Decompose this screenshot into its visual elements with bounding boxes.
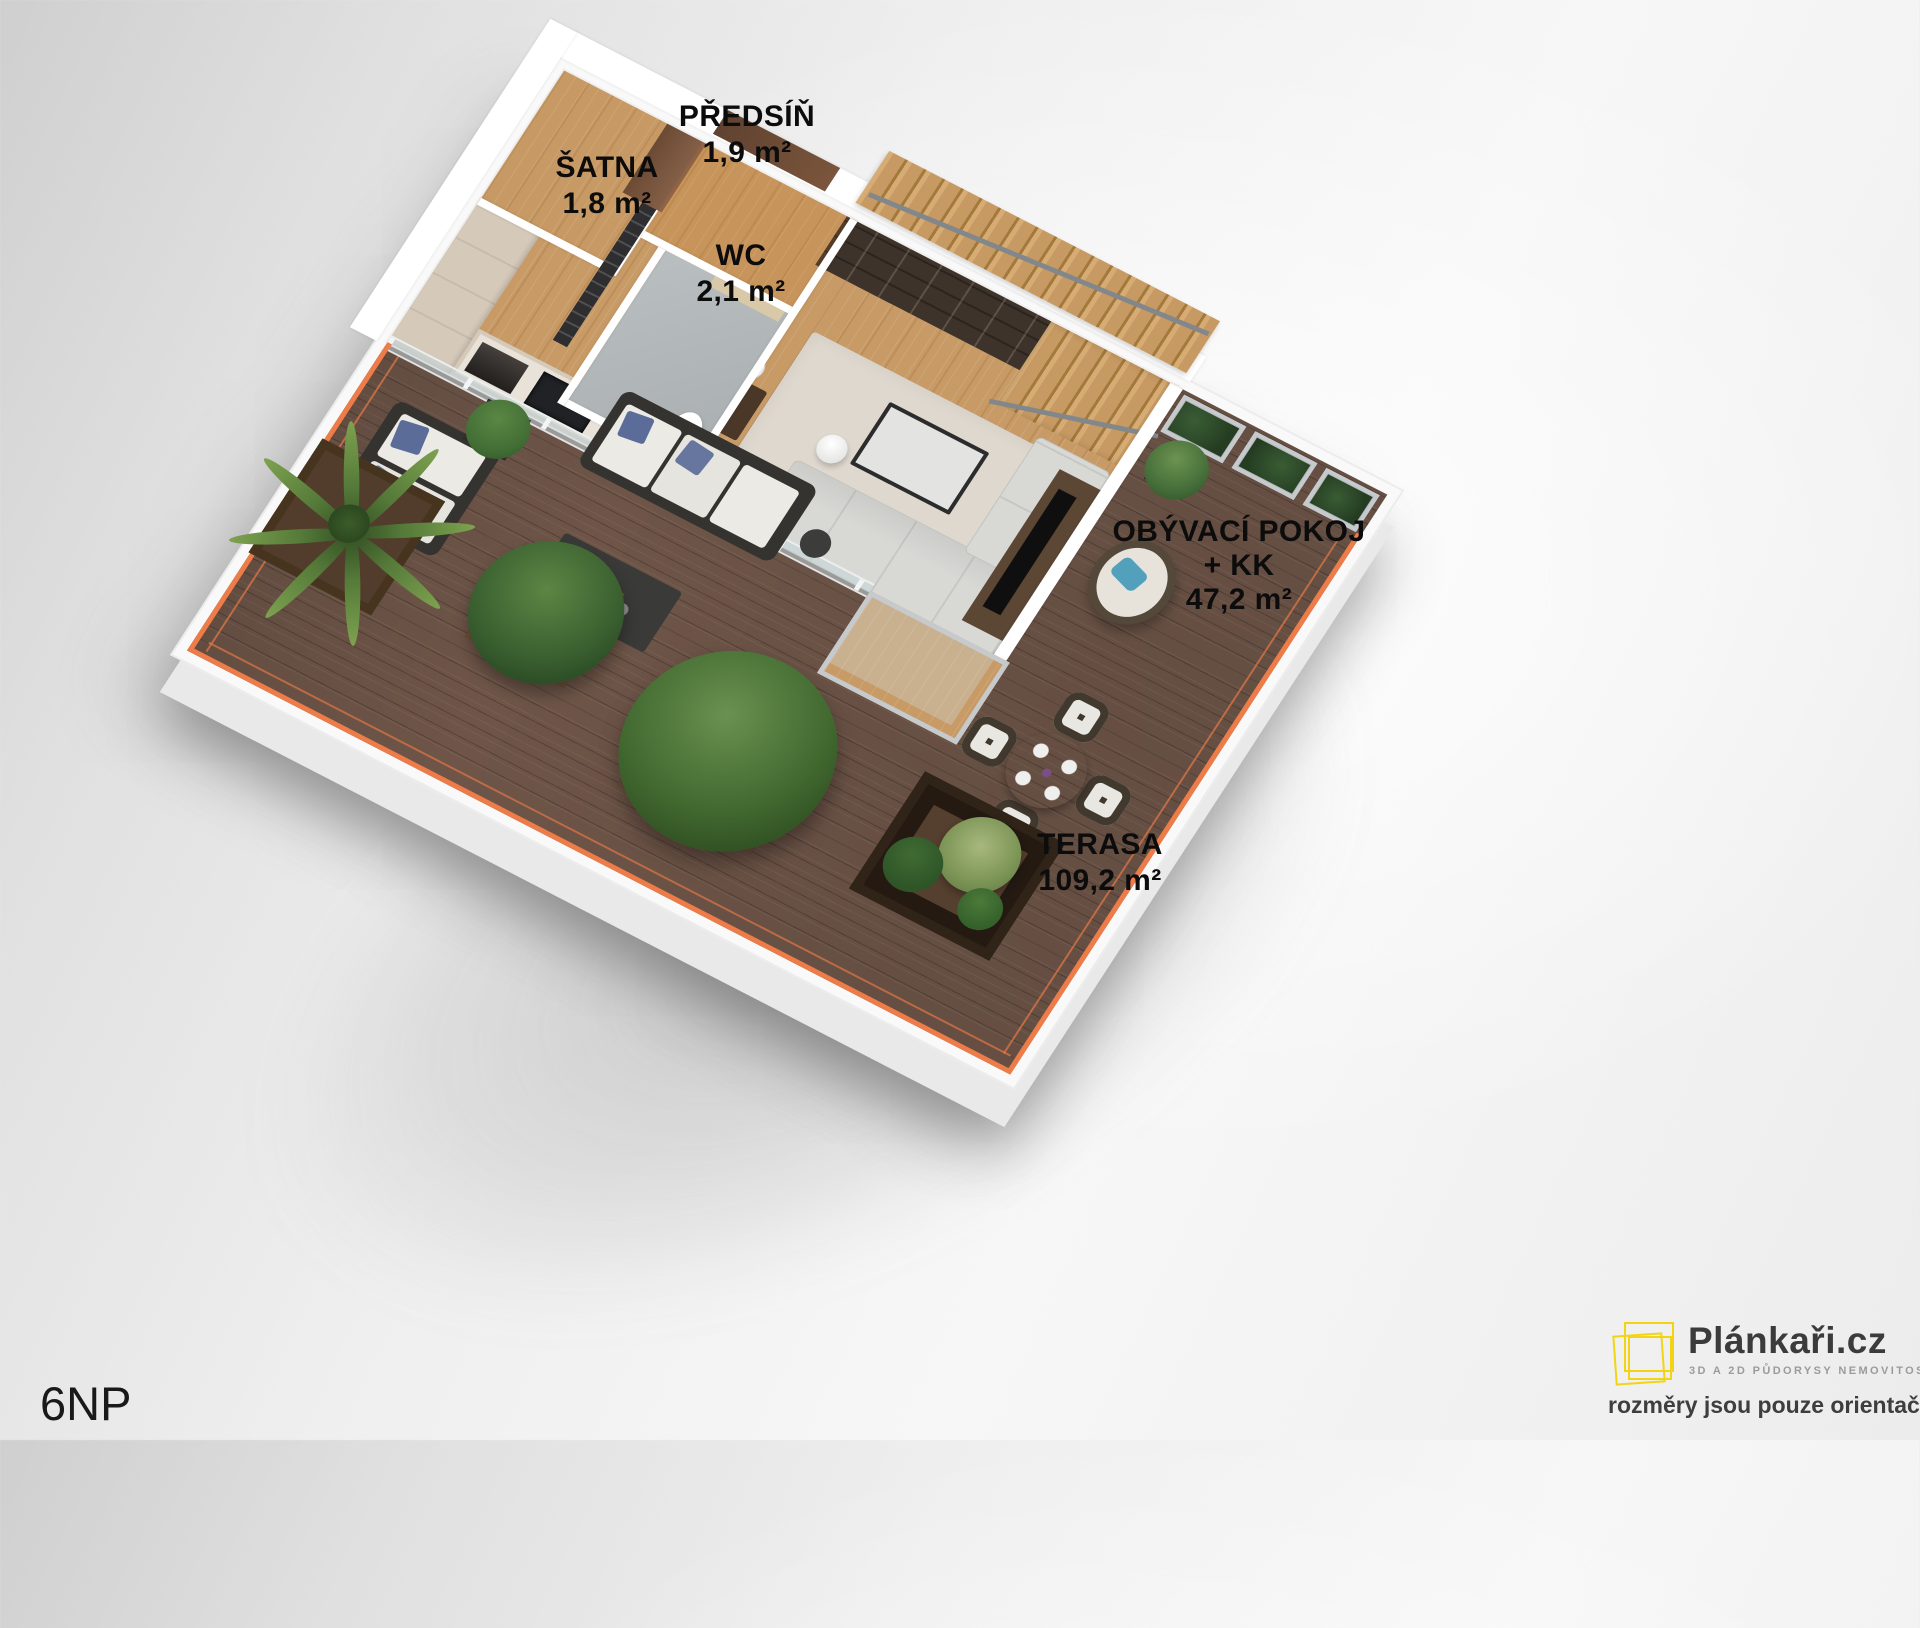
room-area: 109,2 m²: [1037, 863, 1163, 899]
room-title: TERASA: [1037, 827, 1163, 863]
logo-row: Plánkaři.cz 3D A 2D PŮDORYSY NEMOVITOSTÍ: [1608, 1318, 1908, 1390]
room-title: ŠATNA: [555, 150, 658, 186]
room-area: 47,2 m²: [1112, 583, 1365, 617]
brand-tagline: 3D A 2D PŮDORYSY NEMOVITOSTÍ: [1689, 1365, 1920, 1377]
room-label-wc: WC 2,1 m²: [696, 238, 785, 310]
room-subtitle: + KK: [1112, 549, 1365, 583]
room-label-satna: ŠATNA 1,8 m²: [555, 150, 658, 222]
room-area: 2,1 m²: [696, 274, 785, 310]
page-background: { "plan": { "floor_label": "6NP", "rooms…: [0, 0, 1920, 1440]
room-label-terasa: TERASA 109,2 m²: [1037, 827, 1163, 899]
room-title: PŘEDSÍŇ: [679, 99, 815, 135]
logo-square: [1628, 1336, 1672, 1380]
dimensions-disclaimer: rozměry jsou pouze orientační: [1608, 1392, 1908, 1419]
floor-number-label: 6NP: [40, 1376, 131, 1431]
room-label-obyvaci-pokoj: OBÝVACÍ POKOJ + KK 47,2 m²: [1112, 515, 1365, 617]
room-title: WC: [696, 238, 785, 274]
brand-name: Plánkaři.cz: [1688, 1320, 1887, 1362]
room-area: 1,8 m²: [555, 186, 658, 222]
brand-footer: Plánkaři.cz 3D A 2D PŮDORYSY NEMOVITOSTÍ…: [1608, 1318, 1908, 1390]
plankari-logo-squares-icon: [1612, 1320, 1678, 1388]
room-label-predsin: PŘEDSÍŇ 1,9 m²: [679, 99, 815, 171]
room-title: OBÝVACÍ POKOJ: [1112, 515, 1365, 549]
room-area: 1,9 m²: [679, 135, 815, 171]
